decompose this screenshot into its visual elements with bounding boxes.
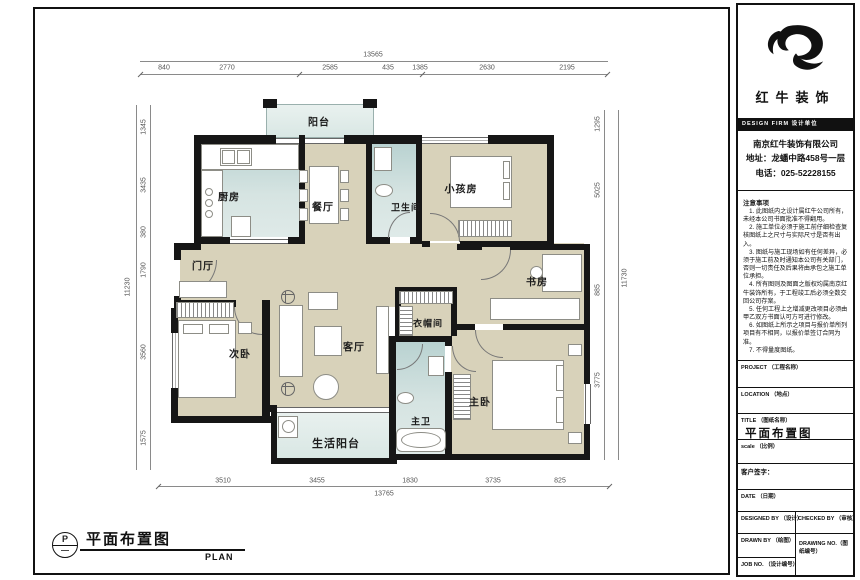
study-closet [490,298,580,320]
pillow [209,324,229,334]
kids-desk [458,220,512,237]
stove-burner [205,188,213,196]
wall-segment [366,135,372,241]
note-item: 6. 如图纸上所示之项目与报价单所列项目有不相同，以报价单签订合同为准。 [743,322,848,346]
cloak-wardrobe [399,291,453,304]
wall-segment [194,135,201,245]
wall-segment [250,135,276,144]
shoe-cabinet [179,281,227,298]
notes-heading: 注意事项 [743,197,848,207]
washer-drum [282,420,295,433]
cloak-wardrobe [399,306,413,336]
bubble-dash: — [53,546,77,555]
pillow [503,161,510,179]
room-label-dining: 餐厅 [312,199,334,214]
wall-segment [488,135,553,144]
room-label-master-bath: 主卫 [411,415,431,428]
dim-line-left-total [136,105,137,470]
wall-segment [445,372,452,460]
stove-burner [205,210,213,218]
pillow [183,324,203,334]
wardrobe [176,302,234,318]
wall-segment [445,336,452,346]
room-label-balcony: 阳台 [308,114,330,129]
sink-basin [222,150,235,164]
dining-chair [299,170,308,183]
design-firm-bar: DESIGN FIRM 设计单位 [738,118,853,131]
pillow [556,397,564,423]
wall-segment [171,416,271,423]
wall-segment [410,237,422,244]
wall-segment [445,454,590,460]
room-label-living: 客厅 [343,339,365,354]
dimension-label: 11230 [125,278,132,297]
dimension-label: 1385 [412,65,428,72]
wall-segment [510,244,590,250]
field-label: scale （比例） [741,442,778,450]
field-job-no: JOB NO. （设计编号） [738,557,795,575]
wall-segment [366,237,390,244]
dim-line-right-segments [604,110,605,460]
wall-segment [503,324,590,330]
field-label: CHECKED BY （审核） [798,514,858,522]
tv-cabinet [376,306,389,374]
dimension-label: 3455 [309,478,325,485]
pillow [556,365,564,391]
cell-divider [795,512,796,534]
room-label-kids: 小孩房 [445,181,478,196]
plan-caption-title: 平面布置图 [86,528,171,549]
company-address: 地址：龙蟠中路458号一层 [738,151,853,165]
wall-segment [389,336,396,460]
note-item: 5. 任何工程上之增减更改项目必须由甲乙双方书面认可方可进行修改。 [743,306,848,322]
field-scale: scale （比例） [738,439,853,463]
sink-basin [237,150,250,164]
plant-symbol [281,290,295,304]
dimension-label: 3560 [141,344,148,360]
dining-chair [340,208,349,221]
dimension-label: 13765 [374,491,393,498]
dim-line-bottom [158,486,610,487]
plan-caption-subtitle: PLAN [205,552,234,562]
dimension-label: 825 [554,478,566,485]
study-desk [542,254,582,292]
field-project: PROJECT （工程名称） [738,360,853,387]
drawing-sheet: 阳台 厨房 餐厅 卫生间 小孩房 门厅 书房 次卧 客厅 衣帽间 主卧 主卫 生… [0,0,860,580]
wall-segment [584,424,590,460]
cell-divider [795,534,796,576]
wall-segment [174,250,181,260]
wall-segment [547,135,554,245]
wall-segment [389,336,452,342]
wall-segment [263,99,277,108]
wall-segment [389,454,451,460]
toilet [397,392,414,404]
field-designed-checked: DESIGNED BY （设计） CHECKED BY （审核） [738,511,853,533]
dimension-label: 1345 [141,119,148,135]
bubble-letter: P [53,534,77,544]
dining-chair [299,189,308,202]
nightstand [568,344,582,356]
coffee-table [314,326,342,356]
dimension-label: 3435 [141,177,148,193]
note-item: 3. 图纸与施工现场如有任何差异，必须于施工前及时通知本公司有关部门，否则一切责… [743,249,848,282]
dimension-label: 380 [141,226,148,238]
master-bed [492,360,564,430]
room-label-master-bedroom: 主卧 [469,394,491,409]
field-drawn-by: DRAWN BY （绘图） DRAWING NO.（图纸编号） [738,533,853,557]
pillow [503,182,510,200]
dining-table [309,166,339,224]
wall-segment [363,99,377,108]
fridge [231,216,251,237]
company-info: 南京红牛装饰有限公司 地址：龙蟠中路458号一层 电话：025-52228155 [738,137,853,180]
company-phone: 电话：025-52228155 [738,166,853,180]
dimension-label: 13565 [363,52,382,59]
room-label-study: 书房 [526,274,548,289]
dimension-label: 2770 [219,65,235,72]
nightstand [568,432,582,444]
dimension-label: 2630 [479,65,495,72]
wall-segment [197,135,252,144]
field-label: LOCATION （地点） [741,390,793,398]
balcony-sliding-door [277,407,389,413]
toilet [375,184,393,197]
wall-segment [271,458,397,464]
sofa [279,305,303,377]
field-label: 客户签字： [741,466,774,476]
nightstand [238,322,252,334]
kitchen-sliding-door [230,239,288,244]
wall-segment [271,411,277,464]
field-location: LOCATION （地点） [738,387,853,413]
wall-segment [416,135,422,241]
title-block: 红牛装饰 DESIGN FIRM 设计单位 南京红牛装饰有限公司 地址：龙蟠中路… [736,3,855,577]
logo-text: 红牛装饰 [738,87,853,106]
wall-segment [422,241,430,247]
wall-segment [299,135,305,239]
room-label-foyer: 门厅 [192,258,214,273]
dining-chair [299,208,308,221]
field-label: DRAWN BY （绘图） [741,536,794,544]
dining-chair [340,170,349,183]
plan-reference-bubble: P — [52,532,78,558]
lounge-chair [313,374,339,400]
dimension-label: 3775 [595,372,602,388]
dimension-label: 2195 [559,65,575,72]
dimension-label: 1575 [141,430,148,446]
room-label-kitchen: 厨房 [218,189,240,204]
dim-tick [605,72,611,78]
bull-logo-icon [756,21,836,81]
wall-segment [344,135,422,144]
bathtub-inner [401,432,441,448]
field-label: DESIGNED BY （设计） [741,514,795,522]
dimension-label: 3735 [485,478,501,485]
plant-symbol [281,382,295,396]
dim-line-right-total [618,110,619,460]
kids-window [422,137,488,144]
caption-underline [80,549,245,551]
dim-line-top-total [140,61,608,62]
room-label-second-bedroom: 次卧 [229,346,251,361]
field-label: DATE （日期） [741,492,779,500]
company-name: 南京红牛装饰有限公司 [738,137,853,151]
field-client-signature: 客户签字： [738,463,853,489]
stove-burner [205,199,213,207]
dim-tick [607,484,613,490]
dimension-label: 840 [158,65,170,72]
wall-segment [174,243,201,250]
field-title: TITLE （图纸名称） 平面布置图 [738,413,853,439]
field-date: DATE （日期） [738,489,853,511]
dimension-label: 1295 [595,116,602,132]
room-label-cloakroom: 衣帽间 [413,317,443,330]
note-item: 7. 不得量度图纸。 [743,347,848,355]
notes-section: 注意事项 1. 此图纸内之设计属红牛公司所有，未经本公司书面批准不得翻用。 2.… [738,190,853,360]
wall-segment [197,237,230,244]
wall-segment [457,244,482,250]
dimension-label: 1830 [402,478,418,485]
field-label: DRAWING NO.（图纸编号） [799,540,851,557]
dimension-label: 435 [382,65,394,72]
wall-segment [455,324,475,330]
dimension-label: 1790 [141,262,148,278]
floor-plan: 阳台 厨房 餐厅 卫生间 小孩房 门厅 书房 次卧 客厅 衣帽间 主卧 主卫 生… [0,0,735,580]
dim-line-left-segments [150,105,151,470]
note-item: 2. 施工单位必须于施工前仔细检查复核图纸上之尺寸与实际尺寸是否有出入。 [743,224,848,248]
room-label-living-balcony: 生活阳台 [312,435,360,451]
master-window [585,384,591,424]
bath-sink [428,356,444,376]
dim-line-top-segments [140,74,608,75]
bathroom-sink [374,147,392,171]
field-label: PROJECT （工程名称） [741,363,802,371]
field-label: JOB NO. （设计编号） [741,560,798,568]
dimension-label: 2585 [322,65,338,72]
wall-segment [584,244,590,384]
dimension-label: 5025 [595,182,602,198]
wall-segment [288,237,305,244]
note-item: 1. 此图纸内之设计属红牛公司所有，未经本公司书面批准不得翻用。 [743,208,848,224]
dimension-label: 11730 [622,269,629,288]
dimension-label: 885 [595,284,602,296]
note-item: 4. 所有图则及图面之版权均属南京红牛装饰所有，于工程竣工后必须全数交回公司存案… [743,281,848,305]
dimension-label: 3510 [215,478,231,485]
room-label-bathroom: 卫生间 [391,201,421,214]
field-label: TITLE （图纸名称） [741,416,791,424]
dining-chair [340,189,349,202]
armchair [308,292,338,310]
